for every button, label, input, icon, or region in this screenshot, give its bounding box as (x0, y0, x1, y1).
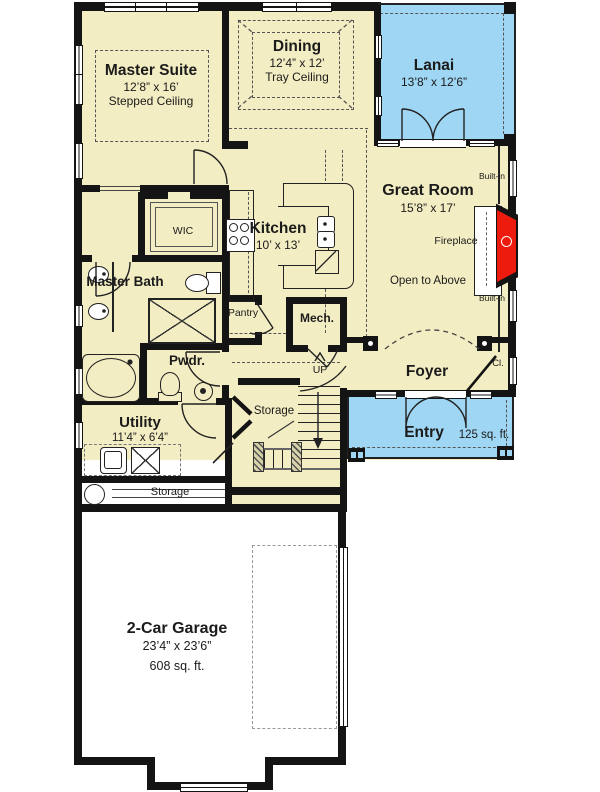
floor-plan: Master Suite 12’8” x 16’ Stepped Ceiling… (0, 0, 600, 792)
area-text: 125 sq. ft. (446, 429, 522, 443)
room-label-wic: WIC (143, 225, 223, 237)
room-label-stair-storage: Storage (234, 405, 314, 419)
fireplace-text: Fireplace (416, 235, 496, 247)
room-name: Cl. (480, 358, 516, 369)
room-label-closet: Cl. (480, 358, 516, 369)
room-label-foyer: Foyer (387, 363, 467, 381)
room-dims: 10’ x 13’ (218, 238, 338, 252)
room-label-shelf-storage: Storage (130, 486, 210, 499)
room-dims: 13’8” x 12’6” (374, 75, 494, 89)
room-label-mech: Mech. (277, 311, 357, 325)
label-entry-area: 125 sq. ft. (446, 429, 522, 443)
label-built-in-bottom: Built-in (462, 293, 522, 303)
room-label-kitchen: Kitchen 10’ x 13’ (218, 220, 338, 252)
room-name: Pantry (203, 307, 283, 319)
built-in-text: Built-in (462, 171, 522, 181)
plan-linework (0, 0, 600, 792)
room-dims: 11’4” x 6’4” (80, 432, 200, 446)
built-in-text: Built-in (462, 293, 522, 303)
room-label-garage: 2-Car Garage 23’4” x 23’6” 608 sq. ft. (107, 620, 247, 673)
room-label-master-bath: Master Bath (85, 274, 165, 290)
room-label-utility: Utility 11’4” x 6’4” (80, 414, 200, 445)
room-dims: 12’8” x 16’ (86, 80, 216, 94)
room-name: Pwdr. (147, 353, 227, 369)
label-open-to-above: Open to Above (388, 275, 468, 289)
room-name: Mech. (277, 311, 357, 325)
room-name: Dining (237, 38, 357, 56)
room-label-powder: Pwdr. (147, 353, 227, 369)
room-label-master-suite: Master Suite 12’8” x 16’ Stepped Ceiling (86, 62, 216, 109)
room-label-dining: Dining 12’4” x 12’ Tray Ceiling (237, 38, 357, 85)
room-name: WIC (143, 225, 223, 237)
room-label-lanai: Lanai 13’8” x 12’6” (374, 57, 494, 89)
room-name: Great Room (358, 182, 498, 201)
open-to-above-text: Open to Above (388, 275, 468, 289)
room-dims: 23’4” x 23’6” (107, 639, 247, 654)
room-note: Stepped Ceiling (86, 94, 216, 108)
room-name: Lanai (374, 57, 494, 75)
room-label-great-room: Great Room 15’8” x 17’ (358, 182, 498, 215)
room-name: Master Bath (85, 274, 165, 290)
room-area: 608 sq. ft. (107, 659, 247, 674)
room-name: Master Suite (86, 62, 216, 80)
room-name: 2-Car Garage (107, 620, 247, 639)
room-name: Kitchen (218, 220, 338, 238)
up-text: UP (300, 364, 340, 376)
label-up: UP (300, 364, 340, 376)
room-dims: 15’8” x 17’ (358, 201, 498, 215)
label-fireplace: Fireplace (416, 235, 496, 247)
room-name: Storage (234, 405, 314, 419)
room-name: Foyer (387, 363, 467, 381)
room-label-pantry: Pantry (203, 307, 283, 319)
room-name: Utility (80, 414, 200, 432)
room-note: Tray Ceiling (237, 70, 357, 84)
room-dims: 12’4” x 12’ (237, 56, 357, 70)
label-built-in-top: Built-in (462, 171, 522, 181)
room-name: Storage (130, 486, 210, 499)
